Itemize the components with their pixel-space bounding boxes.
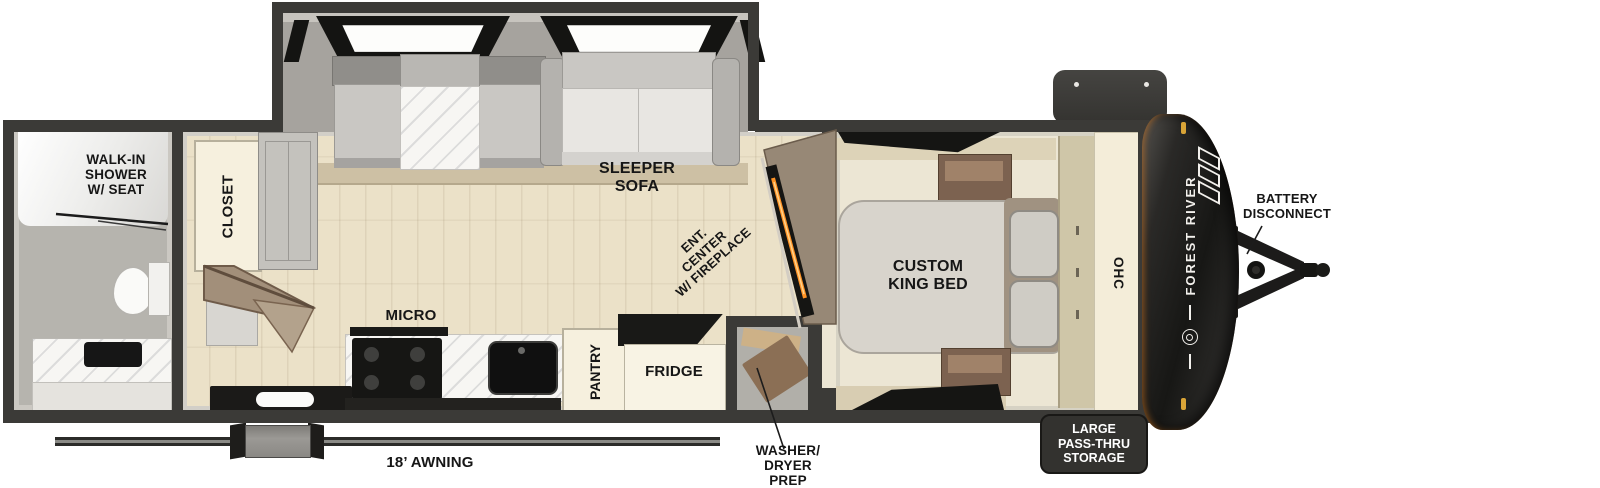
awning-rail [55,437,720,446]
exterior-wall-rear [3,120,14,423]
exterior-wall-top-right [755,120,1150,132]
slideout-wall-top [272,2,759,13]
nightstand-top [945,161,1003,181]
pass-thru-storage-badge: LARGE PASS-THRU STORAGE [1040,414,1148,474]
overhead-cabinet-ohc: OHC [1094,132,1142,414]
entry-door-window [256,392,314,407]
entry-step-flap-left [230,423,246,460]
wd-closet-wall-left [726,316,737,423]
sofa-cushion [638,88,716,154]
bedroom-wall-upper [822,130,836,324]
burner-icon [410,375,425,390]
window-glass [336,25,490,52]
awning-label: 18’ AWNING [370,455,490,472]
burner-icon [364,347,379,362]
wardrobe-handle [1076,226,1079,235]
closet: CLOSET [194,140,262,272]
hitch-icon [1228,226,1330,318]
logo-rule [1189,354,1191,369]
kitchen-sink-icon [488,341,558,395]
entry-step [245,425,311,458]
pillow-icon [1009,210,1059,278]
wardrobe-handle [1076,268,1079,277]
pass-thru-storage-label: LARGE PASS-THRU STORAGE [1058,422,1130,466]
fridge-label: FRIDGE [624,364,724,381]
forest-river-logo: FOREST RIVER [1168,122,1212,422]
dinette-table [400,86,480,170]
faucet-icon [518,347,525,354]
toilet-tank [148,262,170,316]
micro-label: MICRO [376,308,446,325]
bedroom-doorway-floor [822,324,836,388]
bedroom-wall-lower [822,388,836,423]
dinette-seat [334,84,402,162]
burner-icon [410,347,425,362]
wd-closet-wall-right [808,316,822,423]
closet-label: CLOSET [220,174,237,238]
burner-icon [364,375,379,390]
slideout-wall-left [272,2,283,131]
forest-river-emblem-icon [1182,329,1198,345]
dinette-seat-front [478,158,544,168]
slideout-wall-right [748,2,759,131]
wardrobe-cabinet [258,132,318,270]
stove-icon [352,338,442,400]
bathroom-sink-icon [84,342,142,367]
sofa-back [562,52,716,90]
custom-king-bed-label: CUSTOM KING BED [858,258,998,294]
washer-dryer-closet [737,327,808,412]
walk-in-shower-label: WALK-IN SHOWER W/ SEAT [58,152,174,197]
brand-stripes-icon [1198,152,1220,199]
sleeper-sofa-label: SLEEPER SOFA [577,160,697,196]
logo-rule [1189,305,1191,320]
sofa-cushion [562,88,640,154]
tank-cover-rivet [1144,82,1149,87]
battery-disconnect-label: BATTERY DISCONNECT [1232,192,1342,221]
dinette-seat [478,84,546,162]
dinette-seat-front [334,158,400,168]
cabinet-door-line [288,141,289,261]
window-glass [561,25,718,52]
battery-pointer-line [1247,226,1262,254]
tank-cover-rivet [1074,82,1079,87]
dinette-table-end [400,54,480,90]
pantry-label: PANTRY [587,344,603,400]
wardrobe-handle [1076,310,1079,319]
bedroom-wardrobe [1058,136,1096,408]
washer-dryer-prep-label: WASHER/ DRYER PREP [742,443,834,488]
floorplan-diagram: CLOSET PANTRY [0,0,1600,488]
ohc-label: OHC [1111,257,1126,290]
nightstand [938,154,1012,204]
range-hood [350,327,448,336]
nightstand-top [948,355,1002,373]
vanity-front [32,382,172,412]
brand-name: FOREST RIVER [1183,175,1198,295]
counter-side-panel [206,282,258,346]
exterior-wall-top-left [3,120,283,132]
pillow-icon [1009,280,1059,348]
propane-tank-cover [1053,70,1167,124]
sofa-armrest [712,58,740,166]
